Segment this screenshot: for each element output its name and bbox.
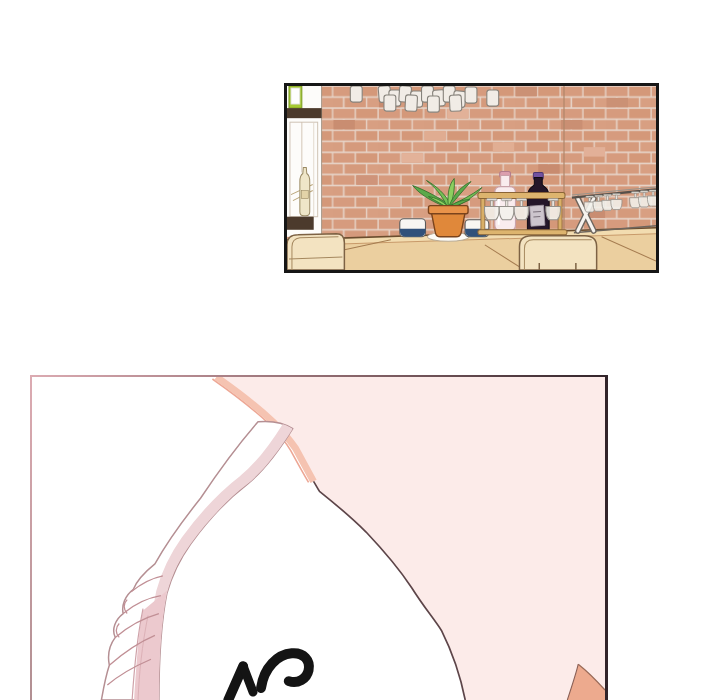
panel-border-left [30,375,32,700]
chair-center [519,236,596,270]
shelf-board-lower [287,217,314,230]
wall-shelf [287,86,322,237]
panel-closeup-scene [30,375,608,700]
candle-cup-left [400,219,426,237]
comic-page [0,0,720,700]
closeup-illustration [32,377,605,700]
bar-scene-illustration [287,86,656,270]
panel-border-top [30,375,608,377]
shelf-board [287,108,322,118]
panel-border-right [605,375,608,700]
plant-pot [431,213,465,237]
chair-left [287,234,344,270]
panel-bar-scene [284,83,659,273]
